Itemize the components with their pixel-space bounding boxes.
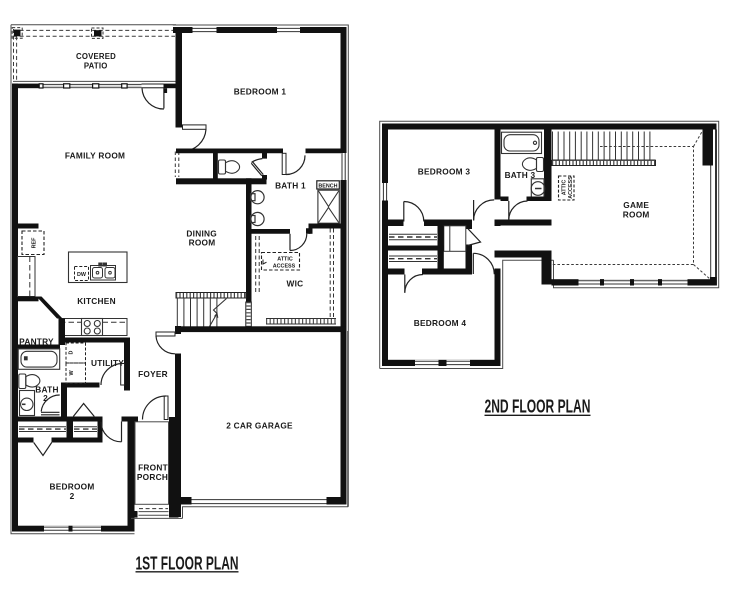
svg-text:PATIO: PATIO xyxy=(84,62,108,71)
svg-text:BEDROOM 4: BEDROOM 4 xyxy=(414,318,467,328)
svg-text:BEDROOM: BEDROOM xyxy=(49,482,94,492)
svg-text:ACCESS: ACCESS xyxy=(568,176,574,199)
svg-text:COVERED: COVERED xyxy=(76,52,116,61)
svg-text:1ST FLOOR PLAN: 1ST FLOOR PLAN xyxy=(136,554,239,574)
svg-text:2: 2 xyxy=(70,491,75,501)
svg-text:ATTIC: ATTIC xyxy=(277,256,293,262)
svg-text:WIC: WIC xyxy=(287,279,304,289)
svg-text:2ND FLOOR PLAN: 2ND FLOOR PLAN xyxy=(485,397,591,417)
svg-text:BATH 1: BATH 1 xyxy=(275,181,306,191)
svg-text:REF: REF xyxy=(32,237,38,248)
svg-text:ACCESS: ACCESS xyxy=(273,264,296,270)
svg-text:BEDROOM 1: BEDROOM 1 xyxy=(234,87,287,97)
svg-text:D: D xyxy=(69,350,75,354)
svg-text:PORCH: PORCH xyxy=(137,472,168,482)
svg-text:ROOM: ROOM xyxy=(623,209,650,219)
svg-text:BEDROOM 3: BEDROOM 3 xyxy=(418,167,471,177)
svg-text:ROOM: ROOM xyxy=(189,238,216,248)
svg-text:2 CAR GARAGE: 2 CAR GARAGE xyxy=(226,421,293,431)
svg-text:FAMILY ROOM: FAMILY ROOM xyxy=(65,151,125,161)
svg-text:KITCHEN: KITCHEN xyxy=(77,296,116,306)
svg-text:ATTIC: ATTIC xyxy=(562,180,568,196)
svg-text:FOYER: FOYER xyxy=(138,369,168,379)
svg-text:FRONT: FRONT xyxy=(138,463,168,473)
svg-text:DW: DW xyxy=(77,272,87,278)
svg-text:BENCH: BENCH xyxy=(318,183,337,189)
svg-text:UTILITY: UTILITY xyxy=(91,358,124,368)
